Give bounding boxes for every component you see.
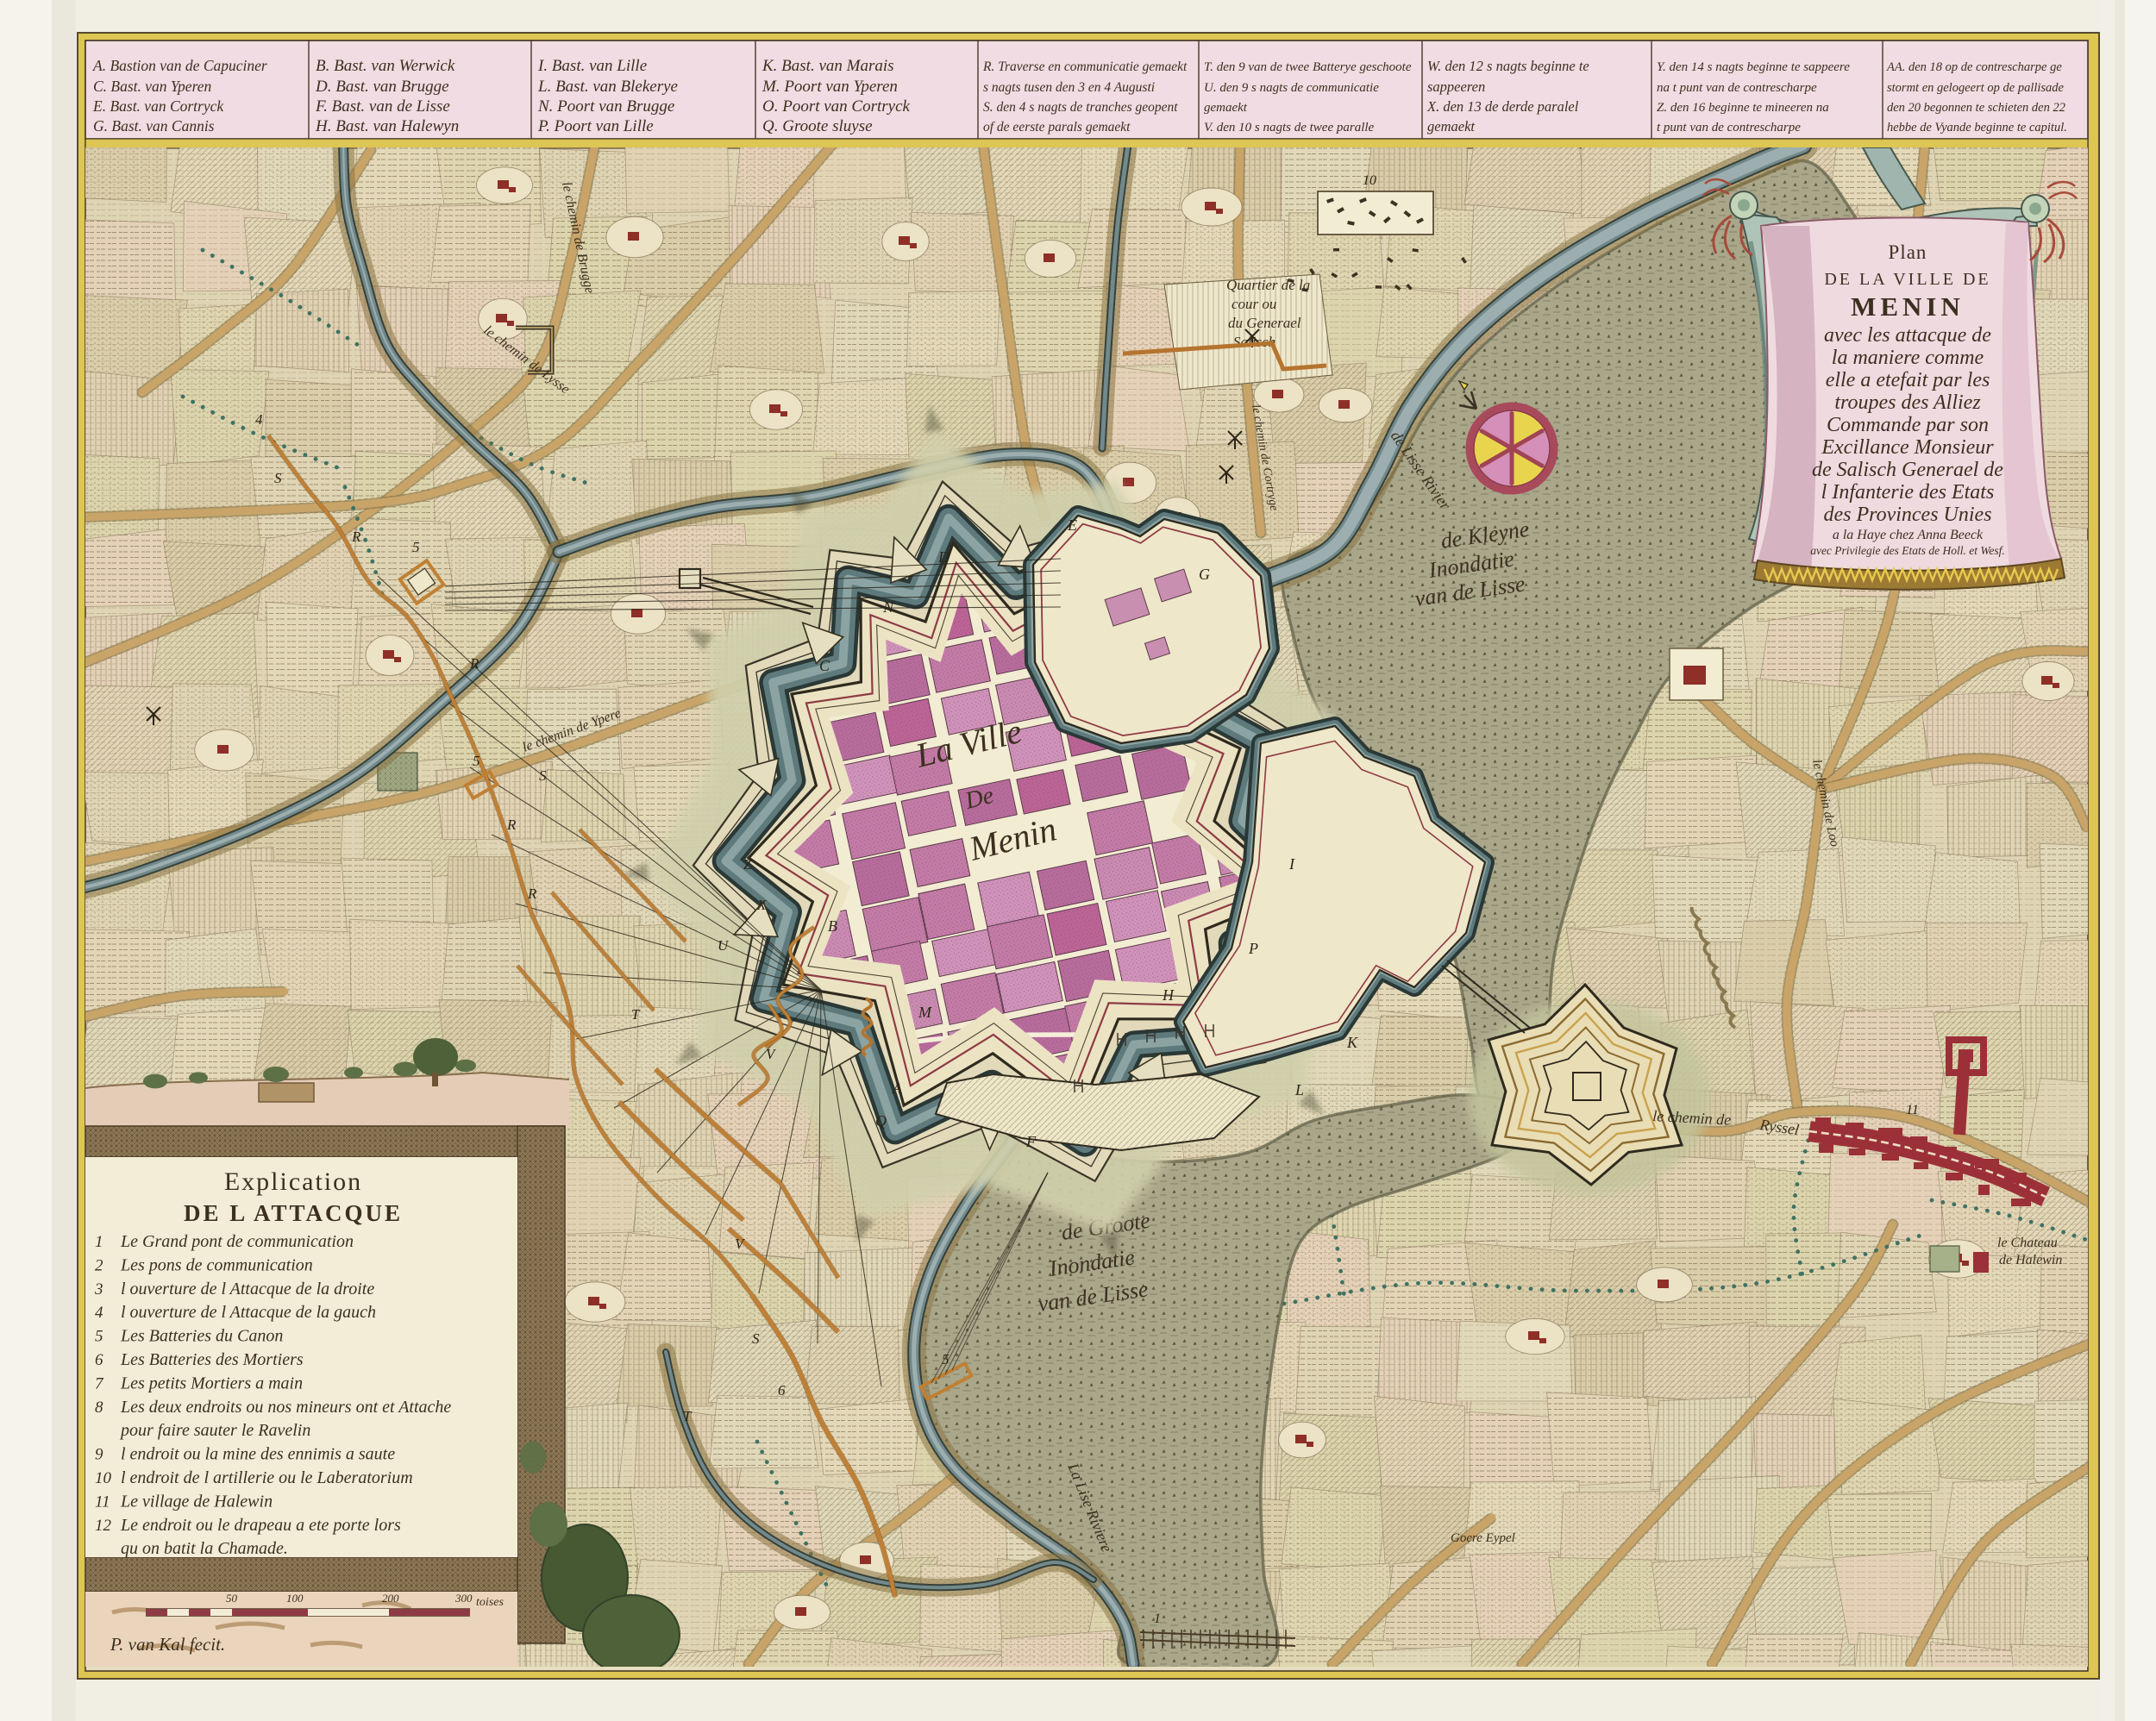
svg-text:U: U: [718, 937, 730, 954]
svg-text:G. Bast. van Cannis: G. Bast. van Cannis: [93, 117, 215, 135]
svg-text:8: 8: [95, 1399, 103, 1417]
svg-text:10: 10: [95, 1469, 112, 1487]
svg-text:l ouverture de l Attacque de l: l ouverture de l Attacque de la gauch: [121, 1303, 376, 1322]
svg-text:T: T: [683, 1408, 693, 1424]
svg-text:2: 2: [95, 1256, 103, 1274]
svg-text:troupes des Alliez: troupes des Alliez: [1834, 391, 1981, 414]
svg-text:MENIN: MENIN: [1851, 291, 1965, 322]
svg-text:Les Batteries des Mortiers: Les Batteries des Mortiers: [120, 1350, 304, 1369]
svg-text:D: D: [937, 548, 950, 566]
svg-text:cour ou: cour ou: [1232, 296, 1276, 312]
svg-text:des Provinces Unies: des Provinces Unies: [1823, 504, 1991, 526]
svg-text:toises: toises: [476, 1596, 504, 1609]
svg-text:DE L ATTACQUE: DE L ATTACQUE: [184, 1200, 403, 1226]
svg-text:K. Bast. van Marais: K. Bast. van Marais: [761, 57, 894, 75]
svg-text:9: 9: [95, 1446, 103, 1464]
svg-text:Commande par son: Commande par son: [1827, 414, 1989, 436]
svg-text:5: 5: [95, 1328, 103, 1346]
svg-text:elle a etefait par les: elle a etefait par les: [1826, 369, 1990, 391]
svg-text:V. den 10 s nagts de twee para: V. den 10 s nagts de twee paralle: [1204, 121, 1375, 135]
svg-text:4: 4: [95, 1304, 103, 1322]
svg-text:DE LA VILLE DE: DE LA VILLE DE: [1824, 270, 1990, 289]
svg-text:du Generael: du Generael: [1228, 315, 1301, 331]
svg-text:of de eerste parals gemaekt: of de eerste parals gemaekt: [983, 120, 1131, 135]
svg-text:A: A: [892, 1080, 903, 1097]
svg-text:Z. den 16 beginne te mineeren: Z. den 16 beginne te mineeren na: [1657, 101, 1829, 115]
svg-text:P. van Kal fecit.: P. van Kal fecit.: [110, 1634, 225, 1655]
svg-text:D. Bast. van Brugge: D. Bast. van Brugge: [315, 78, 449, 96]
svg-text:Goere Eypel: Goere Eypel: [1451, 1531, 1515, 1545]
svg-text:C: C: [819, 657, 830, 674]
svg-text:Le village de Halewin: Le village de Halewin: [120, 1492, 273, 1511]
svg-text:a la Haye chez Anna Beeck: a la Haye chez Anna Beeck: [1833, 528, 1984, 542]
svg-text:de Halewin: de Halewin: [1999, 1253, 2062, 1267]
svg-text:P. Poort van Lille: P. Poort van Lille: [537, 117, 654, 135]
svg-text:50: 50: [226, 1592, 238, 1605]
svg-text:N. Poort van Brugge: N. Poort van Brugge: [537, 97, 674, 116]
svg-text:AA. den 18 op de contrescharpe: AA. den 18 op de contrescharpe ge: [1886, 60, 2062, 74]
svg-text:T: T: [631, 1006, 641, 1023]
svg-text:A. Bastion van de Capuciner: A. Bastion van de Capuciner: [92, 57, 267, 74]
svg-text:Quartier de la: Quartier de la: [1226, 277, 1310, 293]
svg-text:F. Bast. van de Lisse: F. Bast. van de Lisse: [315, 97, 450, 116]
svg-text:E: E: [1067, 516, 1077, 534]
svg-text:L. Bast. van Blekerye: L. Bast. van Blekerye: [537, 78, 678, 96]
svg-text:na t punt van de contrescharpe: na t punt van de contrescharpe: [1657, 81, 1817, 95]
svg-text:B. Bast. van Werwick: B. Bast. van Werwick: [316, 57, 455, 75]
svg-text:L: L: [1294, 1081, 1304, 1098]
svg-text:1: 1: [95, 1233, 103, 1251]
svg-text:5: 5: [473, 753, 480, 769]
svg-text:M. Poort van Yperen: M. Poort van Yperen: [761, 78, 898, 96]
svg-text:I. Bast. van Lille: I. Bast. van Lille: [537, 57, 647, 75]
svg-text:t punt van de contrescharpe: t punt van de contrescharpe: [1657, 121, 1801, 135]
svg-text:hebbe de Vyande beginne te cap: hebbe de Vyande beginne te capitul.: [1887, 121, 2067, 135]
svg-text:la maniere comme: la maniere comme: [1832, 347, 1984, 369]
svg-text:W. den 12 s nagts beginne te: W. den 12 s nagts beginne te: [1427, 58, 1589, 74]
svg-text:Explication: Explication: [224, 1167, 362, 1196]
svg-text:avec Privilegie des Etats de H: avec Privilegie des Etats de Holl. et We…: [1810, 544, 2005, 557]
svg-text:12: 12: [95, 1517, 112, 1535]
svg-text:R: R: [506, 817, 517, 833]
svg-text:100: 100: [286, 1592, 304, 1605]
svg-text:gemaekt: gemaekt: [1204, 101, 1248, 115]
svg-text:l ouverture de l Attacque de l: l ouverture de l Attacque de la droite: [121, 1280, 374, 1299]
svg-text:gemaekt: gemaekt: [1427, 118, 1475, 135]
svg-text:qu on batit la Chamade.: qu on batit la Chamade.: [121, 1539, 288, 1558]
svg-text:Le endroit ou le drapeau a ete: Le endroit ou le drapeau a ete porte lor…: [120, 1516, 401, 1535]
svg-text:Les petits Mortiers a main: Les petits Mortiers a main: [120, 1374, 303, 1392]
svg-text:X. den 13 de derde paralel: X. den 13 de derde paralel: [1426, 98, 1579, 115]
svg-text:Les deux endroits ou nos mineu: Les deux endroits ou nos mineurs ont et …: [120, 1398, 451, 1417]
svg-text:7: 7: [95, 1374, 104, 1392]
svg-text:R: R: [351, 529, 361, 545]
svg-text:R: R: [469, 655, 479, 672]
svg-text:Le Grand pont de communication: Le Grand pont de communication: [120, 1232, 354, 1251]
svg-text:s nagts tusen den 3 en 4 Augus: s nagts tusen den 3 en 4 Augusti: [983, 80, 1155, 95]
svg-text:l Infanterie des Etats: l Infanterie des Etats: [1821, 481, 1995, 504]
svg-text:E. Bast. van Cortryck: E. Bast. van Cortryck: [92, 97, 224, 115]
svg-text:B: B: [828, 917, 837, 935]
svg-text:P: P: [1248, 940, 1258, 957]
svg-text:F: F: [1025, 1133, 1037, 1150]
svg-text:R: R: [527, 886, 537, 902]
svg-text:M: M: [918, 1004, 932, 1021]
svg-text:avec les attacque de: avec les attacque de: [1824, 324, 1991, 347]
svg-text:S. den 4 s nagts de tranches g: S. den 4 s nagts de tranches geopent: [983, 100, 1178, 115]
svg-text:Les Batteries du Canon: Les Batteries du Canon: [120, 1327, 283, 1346]
svg-text:R. Traverse en communicatie ge: R. Traverse en communicatie gemaekt: [982, 59, 1188, 74]
svg-text:300: 300: [454, 1592, 473, 1605]
svg-text:5: 5: [412, 539, 420, 555]
svg-text:Plan: Plan: [1889, 241, 1927, 263]
svg-text:S: S: [539, 767, 547, 784]
svg-text:Q: Q: [875, 1112, 887, 1130]
svg-text:T. den 9 van de twee Batterye: T. den 9 van de twee Batterye geschoote: [1204, 60, 1412, 74]
svg-text:X: X: [756, 897, 767, 913]
svg-text:Y. den 14 s nagts beginne te s: Y. den 14 s nagts beginne te sappeere: [1657, 60, 1850, 74]
svg-text:Q. Groote sluyse: Q. Groote sluyse: [762, 117, 873, 135]
svg-text:pour faire sauter le Ravelin: pour faire sauter le Ravelin: [119, 1421, 310, 1440]
svg-text:10: 10: [1363, 173, 1376, 188]
svg-text:Les pons de communication: Les pons de communication: [120, 1255, 313, 1274]
svg-text:4: 4: [255, 411, 263, 428]
svg-text:1: 1: [1154, 1611, 1161, 1626]
svg-text:N: N: [882, 598, 894, 616]
svg-text:sappeeren: sappeeren: [1427, 78, 1485, 95]
svg-text:5: 5: [942, 1351, 950, 1367]
svg-text:Z: Z: [743, 856, 752, 873]
svg-text:200: 200: [382, 1592, 399, 1605]
svg-text:6: 6: [95, 1351, 103, 1369]
svg-text:S: S: [752, 1330, 760, 1347]
svg-text:U. den 9 s nagts de communicat: U. den 9 s nagts de communicatie: [1204, 81, 1379, 95]
svg-text:I: I: [1288, 855, 1295, 873]
svg-text:H: H: [1162, 986, 1175, 1004]
svg-text:O. Poort van Cortryck: O. Poort van Cortryck: [762, 97, 911, 116]
svg-text:stormt en gelogeert op de pall: stormt en gelogeert op de pallisade: [1887, 81, 2065, 95]
svg-text:l endroit ou la mine des ennim: l endroit ou la mine des ennimis a saute: [121, 1445, 395, 1464]
svg-text:den 20 begonnen te schieten de: den 20 begonnen te schieten den 22: [1887, 101, 2065, 115]
svg-text:K: K: [1346, 1034, 1358, 1051]
svg-text:11: 11: [1906, 1103, 1919, 1117]
svg-text:S: S: [274, 470, 282, 486]
svg-text:H. Bast. van Halewyn: H. Bast. van Halewyn: [315, 117, 459, 135]
svg-text:6: 6: [778, 1382, 786, 1399]
svg-text:le Chateau: le Chateau: [1997, 1236, 2058, 1250]
svg-text:l endroit de l artillerie ou l: l endroit de l artillerie ou le Laberato…: [121, 1468, 413, 1487]
svg-text:Excillance Monsieur: Excillance Monsieur: [1821, 436, 1994, 459]
svg-text:G: G: [1199, 566, 1210, 583]
svg-text:3: 3: [94, 1280, 103, 1299]
svg-text:11: 11: [95, 1493, 110, 1511]
svg-text:C. Bast. van Yperen: C. Bast. van Yperen: [93, 78, 211, 95]
svg-text:de Salisch Generael de: de Salisch Generael de: [1812, 459, 2003, 481]
